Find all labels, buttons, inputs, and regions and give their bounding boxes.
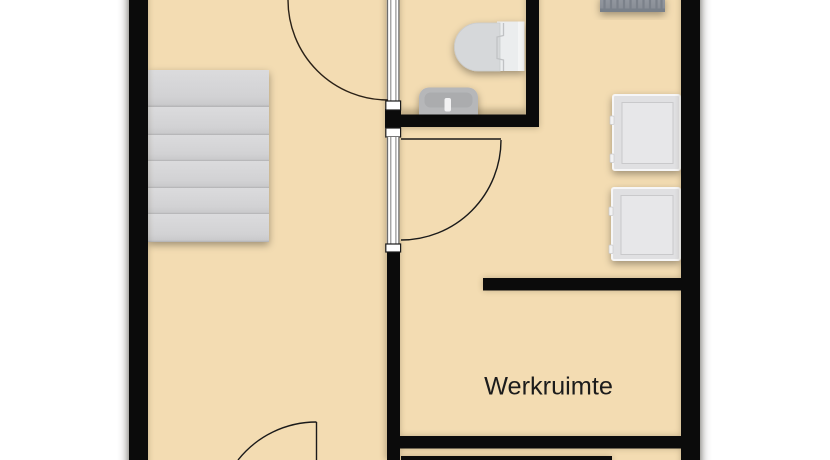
svg-text:Werkruimte: Werkruimte [484,373,613,401]
